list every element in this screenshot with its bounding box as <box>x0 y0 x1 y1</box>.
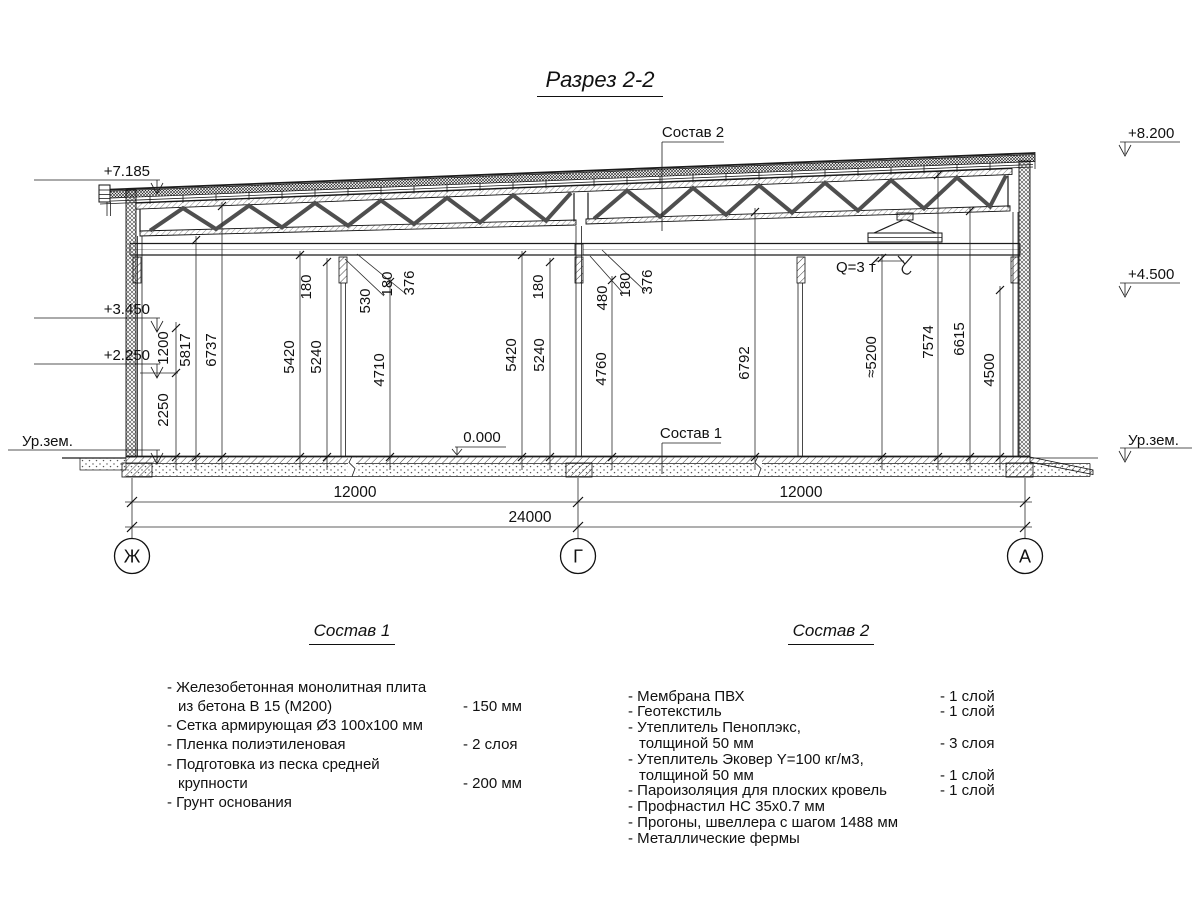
sand-bed-band <box>126 464 1090 476</box>
list-item: - Утеплитель Эковер Y=100 кг/м3, <box>628 752 1034 768</box>
axis-zh: Ж <box>124 547 141 567</box>
axis-g: Г <box>573 547 583 567</box>
list-item: - Подготовка из песка средней <box>167 755 537 774</box>
elevation-8200: +8.200 <box>1119 125 1180 156</box>
list-item: - Мембрана ПВХ- 1 слой <box>628 689 1034 705</box>
dim-6615: 6615 <box>951 322 968 355</box>
list-item: - Металлические фермы <box>628 831 1034 847</box>
list-item: крупности- 200 мм <box>167 774 537 793</box>
list-item: - Пароизоляция для плоских кровель- 1 сл… <box>628 783 1034 799</box>
drawing-sheet: Разрез 2-2 <box>0 0 1200 900</box>
crane-hook-icon <box>898 256 912 274</box>
post-1 <box>341 283 346 456</box>
list-item: толщиной 50 мм- 3 слоя <box>628 736 1034 752</box>
list-item: - Прогоны, швеллера с шагом 1488 мм <box>628 815 1034 831</box>
foundation-center <box>566 463 592 477</box>
dim-6737: 6737 <box>203 333 220 366</box>
dim-5420-a: 5420 <box>281 340 298 373</box>
legend2-heading: Состав 2 <box>788 622 875 645</box>
dim-5240-a: 5240 <box>308 340 325 373</box>
list-item: толщиной 50 мм- 1 слой <box>628 768 1034 784</box>
ground-level-right: Ур.зем. <box>1119 432 1192 462</box>
legend1-heading: Состав 1 <box>309 622 396 645</box>
axis-a: А <box>1019 547 1031 567</box>
dim-4760: 4760 <box>593 352 610 385</box>
svg-text:Ур.зем.: Ур.зем. <box>1128 432 1179 449</box>
list-item: - Геотекстиль- 1 слой <box>628 704 1034 720</box>
svg-text:+7.185: +7.185 <box>104 163 150 180</box>
list-item: - Железобетонная монолитная плита <box>167 678 537 697</box>
dim-6792: 6792 <box>736 346 753 379</box>
dim-376-b: 376 <box>639 269 656 294</box>
list-item: - Сетка армирующая Ø3 100х100 мм <box>167 716 537 735</box>
hoist-clamp <box>897 213 913 220</box>
dim-5817: 5817 <box>177 333 194 366</box>
dim-180-d: 180 <box>617 272 634 297</box>
zero-level-mark: 0.000 <box>452 429 506 455</box>
dim-180-a: 180 <box>298 274 315 299</box>
span-dimensions: 12000 12000 24000 <box>125 478 1032 538</box>
axis-markers: Ж Г А <box>115 539 1043 574</box>
svg-text:+4.500: +4.500 <box>1128 266 1174 283</box>
svg-text:Состав 1: Состав 1 <box>660 425 722 442</box>
runway-beam <box>130 244 1020 256</box>
dim-5240-b: 5240 <box>531 338 548 371</box>
floor-slab <box>62 457 1098 478</box>
dim-5420-b: 5420 <box>503 338 520 371</box>
list-item: из бетона В 15 (М200)- 150 мм <box>167 697 537 716</box>
list-item: - Грунт основания <box>167 793 537 812</box>
dim-480: 480 <box>594 285 611 310</box>
right-wall <box>1019 161 1030 457</box>
dim-530: 530 <box>357 288 374 313</box>
legend-sostav-2: Состав 2 - Мембрана ПВХ- 1 слой - Геотек… <box>628 622 1034 847</box>
list-item: - Утеплитель Пеноплэкс, <box>628 720 1034 736</box>
foundation-left <box>122 463 152 477</box>
dim-12000-right: 12000 <box>779 484 822 501</box>
height-dimensions: 1200 2250 5817 6737 5420 5240 4710 180 5… <box>140 171 1004 470</box>
foundation-right <box>1006 463 1033 477</box>
svg-text:Ур.зем.: Ур.зем. <box>22 433 73 450</box>
legend-sostav-1: Состав 1 - Железобетонная монолитная пли… <box>167 622 537 812</box>
eaves-fascia <box>99 185 111 216</box>
right-column <box>1013 212 1018 456</box>
dim-2250: 2250 <box>155 393 172 426</box>
dim-24000: 24000 <box>508 509 551 526</box>
dim-5200: ≈5200 <box>863 336 880 378</box>
dim-180-c: 180 <box>530 274 547 299</box>
crane-capacity-label: Q=3 т <box>836 259 876 276</box>
list-item: - Профнастил НС 35х0.7 мм <box>628 799 1034 815</box>
crane-hoist: Q=3 т <box>836 213 942 276</box>
svg-text:Состав 2: Состав 2 <box>662 124 724 141</box>
left-wall <box>126 190 136 457</box>
dim-180-b: 180 <box>379 271 396 296</box>
walls-and-columns <box>126 161 1030 457</box>
dim-4500: 4500 <box>981 353 998 386</box>
svg-text:+2.250: +2.250 <box>104 347 150 364</box>
dim-12000-left: 12000 <box>333 484 376 501</box>
post-2 <box>798 283 803 456</box>
dim-1200: 1200 <box>155 331 172 364</box>
elevation-3450: +3.450 <box>34 301 163 332</box>
concrete-slab-band <box>126 457 1030 463</box>
svg-text:+3.450: +3.450 <box>104 301 150 318</box>
list-item: - Пленка полиэтиленовая- 2 слоя <box>167 735 537 754</box>
svg-text:+8.200: +8.200 <box>1128 125 1174 142</box>
section-drawing: Q=3 т <box>0 0 1200 620</box>
dim-7574: 7574 <box>920 325 937 358</box>
elevation-4500: +4.500 <box>1119 266 1180 297</box>
dim-376-a: 376 <box>401 270 418 295</box>
svg-text:0.000: 0.000 <box>463 429 501 446</box>
left-apron <box>62 458 126 470</box>
dim-4710: 4710 <box>371 353 388 386</box>
